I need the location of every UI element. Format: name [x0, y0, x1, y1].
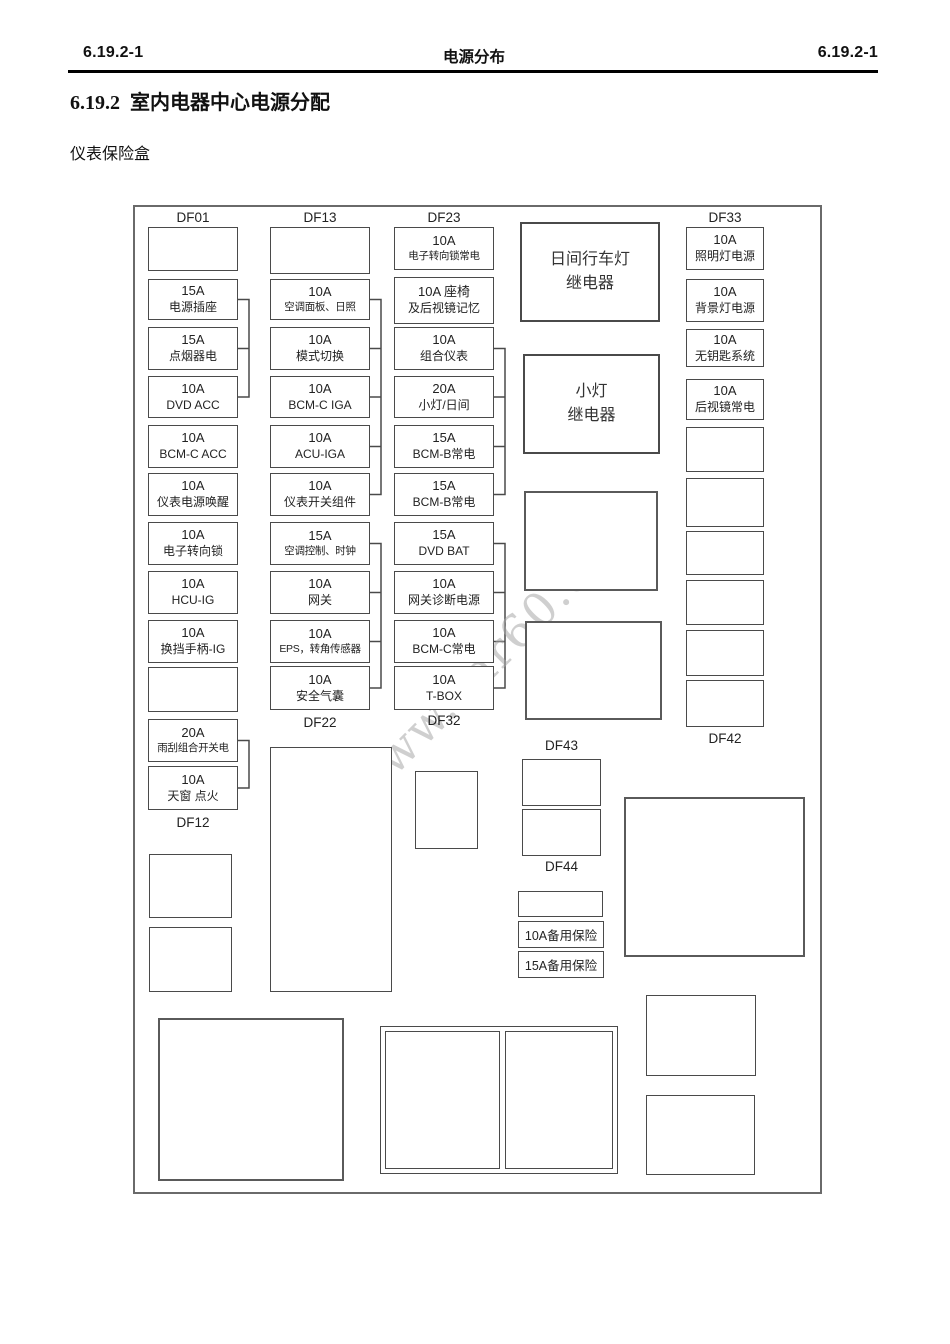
- section-name: 室内电器中心电源分配: [130, 92, 330, 114]
- fuse-name: 电子转向锁: [163, 544, 223, 560]
- fuse-name: 无钥匙系统: [695, 349, 755, 365]
- fuse-amp: 10A: [432, 576, 455, 593]
- fuse-box: 10ABCM-C常电: [394, 620, 494, 663]
- fuse-amp: 10A: [308, 430, 331, 447]
- fuse-name: BCM-C ACC: [159, 447, 226, 463]
- empty-fuse-slot: [148, 667, 238, 712]
- diagram-subtitle: 仪表保险盒: [70, 140, 150, 164]
- fuse-name: 组合仪表: [420, 349, 468, 365]
- fuse-box: 10A空调面板、日照: [270, 279, 370, 320]
- empty-fuse-slot: [686, 478, 764, 527]
- empty-slot: [518, 891, 603, 917]
- fuse-name: 小灯/日间: [418, 398, 469, 414]
- daytime-running-lamp-relay: 日间行车灯 继电器: [520, 222, 660, 322]
- fuse-name: 电子转向锁常电: [408, 250, 479, 264]
- fuse-name: 天窗 点火: [167, 789, 218, 805]
- fuse-amp: 20A: [432, 381, 455, 398]
- fuse-box: 10A仪表开关组件: [270, 473, 370, 516]
- empty-slot: [149, 927, 232, 992]
- page-number-right: 6.19.2-1: [818, 44, 878, 62]
- empty-relay-slot: [524, 491, 658, 591]
- fuse-name: 电源插座: [169, 300, 217, 316]
- fuse-box: 10A网关诊断电源: [394, 571, 494, 614]
- empty-fuse-slot: [686, 427, 764, 472]
- connector-label-df44: DF44: [522, 859, 601, 874]
- spare-fuse-15a: 15A备用保险: [518, 951, 604, 978]
- fuse-box: 10A换挡手柄-IG: [148, 620, 238, 663]
- relay-type: 继电器: [567, 404, 615, 428]
- empty-fuse-slot: [686, 580, 764, 625]
- fuse-box-diagram: www.car60.com DF01 15A电源插座 15A点烟器电 10ADV…: [133, 205, 822, 1194]
- fuse-box: 10ADVD ACC: [148, 376, 238, 418]
- fuse-amp: 10A: [181, 478, 204, 495]
- fuse-name: ACU-IGA: [295, 447, 345, 463]
- fuse-box: 20A雨刮组合开关电: [148, 719, 238, 762]
- fuse-amp: 10A: [181, 527, 204, 544]
- fuse-name: 雨刮组合开关电: [157, 742, 228, 756]
- fuse-box: 15ADVD BAT: [394, 522, 494, 565]
- section-number: 6.19.2: [70, 92, 120, 114]
- fuse-amp: 10A: [432, 672, 455, 689]
- empty-module-slot: [624, 797, 805, 957]
- fuse-amp: 10A: [308, 284, 331, 301]
- fuse-box: 15A电源插座: [148, 279, 238, 320]
- fuse-amp: 10A: [713, 332, 736, 349]
- fuse-amp: 10A: [181, 576, 204, 593]
- fuse-box: 15A空调控制、时钟: [270, 522, 370, 565]
- empty-fuse-slot: [270, 227, 370, 274]
- fuse-amp: 10A: [432, 233, 455, 250]
- connector-label-df42: DF42: [686, 731, 764, 746]
- fuse-name: 网关: [308, 593, 332, 609]
- fuse-amp: 10A: [713, 284, 736, 301]
- fuse-name: 及后视镜记忆: [408, 301, 480, 317]
- fuse-name: DVD BAT: [418, 544, 469, 560]
- empty-fuse-slot: [148, 227, 238, 271]
- fuse-name: BCM-B常电: [413, 495, 476, 511]
- fuse-name: 后视镜常电: [695, 400, 755, 416]
- empty-slot: [415, 771, 478, 849]
- fuse-box: 10AHCU-IG: [148, 571, 238, 614]
- fuse-amp: 10A: [308, 332, 331, 349]
- fuse-name: EPS，转角传感器: [279, 643, 360, 657]
- fuse-box: 10A电子转向锁常电: [394, 227, 494, 270]
- fuse-name: 照明灯电源: [695, 249, 755, 265]
- fuse-box: 10A 座椅及后视镜记忆: [394, 277, 494, 324]
- fuse-name: 网关诊断电源: [408, 593, 480, 609]
- fuse-box: 10AACU-IGA: [270, 425, 370, 468]
- fuse-amp: 10A: [308, 478, 331, 495]
- empty-slot: [646, 995, 756, 1076]
- fuse-box: 10A仪表电源唤醒: [148, 473, 238, 516]
- fuse-name: BCM-C常电: [412, 642, 475, 658]
- empty-slot: [149, 854, 232, 918]
- empty-fuse-slot: [686, 630, 764, 676]
- fuse-amp: 15A: [432, 527, 455, 544]
- manual-page: 6.19.2-1 电源分布 6.19.2-1 6.19.2室内电器中心电源分配 …: [0, 0, 950, 1344]
- fuse-amp: 10A: [713, 383, 736, 400]
- fuse-name: 安全气囊: [296, 689, 344, 705]
- fuse-amp: 10A: [713, 232, 736, 249]
- empty-slot: [505, 1031, 613, 1169]
- fuse-box: 10ABCM-C ACC: [148, 425, 238, 468]
- fuse-amp: 15A: [432, 478, 455, 495]
- fuse-amp: 20A: [181, 725, 204, 742]
- small-lamp-relay: 小灯 继电器: [523, 354, 660, 454]
- fuse-amp: 10A: [308, 576, 331, 593]
- fuse-amp: 10A: [181, 430, 204, 447]
- connector-label-df43: DF43: [522, 738, 601, 753]
- fuse-amp: 15A: [308, 528, 331, 545]
- empty-slot: [522, 759, 601, 806]
- fuse-amp: 10A: [432, 625, 455, 642]
- empty-module-slot: [158, 1018, 344, 1181]
- fuse-name: 仪表开关组件: [284, 495, 356, 511]
- empty-slot: [385, 1031, 500, 1169]
- fuse-box: 10A组合仪表: [394, 327, 494, 370]
- fuse-name: HCU-IG: [172, 593, 215, 609]
- fuse-box: 15ABCM-B常电: [394, 473, 494, 516]
- fuse-box: 20A小灯/日间: [394, 376, 494, 418]
- empty-slot: [646, 1095, 755, 1175]
- section-title: 6.19.2室内电器中心电源分配: [70, 86, 330, 115]
- fuse-amp: 10A: [308, 381, 331, 398]
- empty-module-slot: [270, 747, 392, 992]
- fuse-box: 10A无钥匙系统: [686, 329, 764, 367]
- connector-label-df32: DF32: [394, 713, 494, 728]
- connector-label-df23: DF23: [394, 210, 494, 225]
- fuse-name: 点烟器电: [169, 349, 217, 365]
- fuse-amp: 10A: [432, 332, 455, 349]
- fuse-box: 10A模式切换: [270, 327, 370, 370]
- fuse-name: BCM-B常电: [413, 447, 476, 463]
- fuse-name: BCM-C IGA: [288, 398, 351, 414]
- fuse-amp: 10A: [181, 772, 204, 789]
- connector-label-df33: DF33: [686, 210, 764, 225]
- fuse-name: 空调面板、日照: [284, 301, 355, 315]
- fuse-name: 换挡手柄-IG: [161, 642, 226, 658]
- relay-name: 小灯: [575, 380, 607, 404]
- fuse-amp: 10A: [308, 672, 331, 689]
- empty-fuse-slot: [686, 531, 764, 575]
- fuse-name: 空调控制、时钟: [284, 545, 355, 559]
- fuse-box: 15ABCM-B常电: [394, 425, 494, 468]
- fuse-name: DVD ACC: [166, 398, 219, 414]
- empty-fuse-slot: [686, 680, 764, 727]
- fuse-box: 10A安全气囊: [270, 666, 370, 710]
- header-rule: [68, 70, 878, 73]
- fuse-box: 10A后视镜常电: [686, 379, 764, 420]
- fuse-box: 10AT-BOX: [394, 666, 494, 710]
- fuse-amp: 10A: [181, 381, 204, 398]
- relay-type: 继电器: [566, 272, 614, 296]
- fuse-name: 模式切换: [296, 349, 344, 365]
- chapter-title: 电源分布: [70, 45, 878, 67]
- fuse-box: 15A点烟器电: [148, 327, 238, 370]
- fuse-box: 10AEPS，转角传感器: [270, 620, 370, 663]
- fuse-amp: 15A: [432, 430, 455, 447]
- empty-relay-slot: [525, 621, 662, 720]
- fuse-box: 10ABCM-C IGA: [270, 376, 370, 418]
- fuse-box: 10A天窗 点火: [148, 766, 238, 810]
- connector-label-df22: DF22: [270, 715, 370, 730]
- fuse-box: 10A背景灯电源: [686, 279, 764, 322]
- fuse-box: 10A电子转向锁: [148, 522, 238, 565]
- fuse-amp: 10A: [308, 626, 331, 643]
- fuse-amp: 15A: [181, 332, 204, 349]
- spare-fuse-10a: 10A备用保险: [518, 921, 604, 948]
- connector-label-df12: DF12: [148, 815, 238, 830]
- fuse-amp: 10A 座椅: [418, 284, 470, 301]
- relay-name: 日间行车灯: [550, 248, 630, 272]
- fuse-amp: 10A: [181, 625, 204, 642]
- fuse-name: 仪表电源唤醒: [157, 495, 229, 511]
- fuse-box: 10A网关: [270, 571, 370, 614]
- fuse-box: 10A照明灯电源: [686, 227, 764, 270]
- connector-label-df13: DF13: [270, 210, 370, 225]
- connector-label-df01: DF01: [148, 210, 238, 225]
- fuse-name: 背景灯电源: [695, 301, 755, 317]
- empty-slot: [522, 809, 601, 856]
- fuse-amp: 15A: [181, 283, 204, 300]
- fuse-name: T-BOX: [426, 689, 462, 705]
